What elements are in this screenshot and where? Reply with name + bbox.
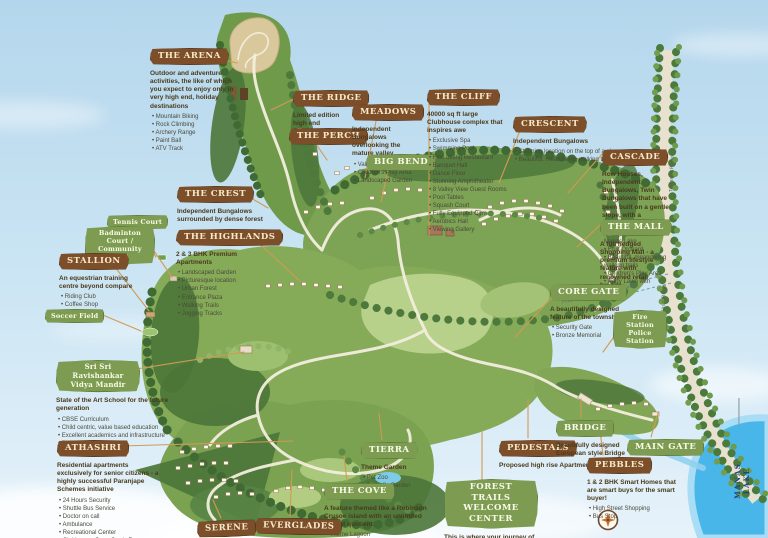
area-pedestals-desc: Proposed high rise Apartments <box>499 462 599 470</box>
area-pebbles-bullets: High Street ShoppingBus Stop <box>587 505 687 521</box>
area-athashri: ATHASHRI Residential apartments exclusiv… <box>57 437 165 538</box>
welcome-center-plaque: FOREST TRAILS WELCOME CENTER <box>444 479 538 529</box>
area-school-plaque: Sri Sri Ravishankar Vidya Mandir <box>56 360 140 392</box>
area-arena-plaque: THE ARENA <box>150 48 229 65</box>
soccer-field-label: Soccer Field <box>45 309 104 323</box>
bullet-item: CBSE Curriculum <box>58 416 178 424</box>
area-crest-plaque: THE CREST <box>177 186 254 203</box>
bullet-item: Viewing Gallery <box>429 226 511 234</box>
bullet-item: Landscaped Garden <box>178 269 268 277</box>
site-map: THE ARENA Outdoor and adventure activiti… <box>0 0 768 538</box>
fine-print <box>738 398 740 425</box>
bullet-item: High Street Shopping <box>589 505 687 513</box>
bullet-item: Doctor on call <box>59 513 165 521</box>
bullet-item: Banquet Hall <box>429 162 511 170</box>
area-highlands-bullets: Landscaped GardenPicturesque locationUrb… <box>176 269 268 318</box>
area-soccer-field: Soccer Field <box>45 305 104 323</box>
bullet-item: Bus Stop <box>589 513 687 521</box>
area-crescent-desc: Independent Bungalows <box>513 138 625 146</box>
area-school-desc: State of the Art School for the future g… <box>56 397 178 413</box>
area-pebbles-desc: 1 & 2 BHK Smart Homes that are smart buy… <box>587 479 687 503</box>
area-tierra-plaque: TIERRA <box>361 442 418 459</box>
area-coregate-plaque: CORE GATE <box>550 284 627 301</box>
area-serene-plaque: SERENE <box>197 519 257 538</box>
bullet-item: Walking Trails <box>178 302 268 310</box>
area-cliff: THE CLIFF 40000 sq ft large Clubhouse co… <box>427 86 511 235</box>
bullet-item: Riding Club <box>61 293 135 301</box>
area-highlands-desc: 2 & 3 BHK Premium Apartments <box>176 251 268 267</box>
area-mall: THE MALL A full fledged Shopping Mall - … <box>600 216 668 290</box>
area-welcome-center: FOREST TRAILS WELCOME CENTER This is whe… <box>444 479 556 538</box>
bullet-item: 8 Valley View Guest Rooms <box>429 186 511 194</box>
area-pebbles-plaque: PEBBLES <box>587 457 652 474</box>
area-maingate: MAIN GATE <box>627 436 704 456</box>
area-meadows: MEADOWS Independent Bungalows overlookin… <box>352 101 416 185</box>
area-cliff-plaque: THE CLIFF <box>427 89 500 106</box>
area-bigbend-plaque: BIG BEND <box>366 154 436 171</box>
bullet-item: ATV Track <box>152 145 242 153</box>
area-mall-plaque: THE MALL <box>600 219 672 236</box>
bullet-item: Fully Equipped Gym <box>429 210 511 218</box>
bullet-item: Aerobics Hall <box>429 218 511 226</box>
bullet-item: 24 Hours Security <box>59 497 165 505</box>
area-bridge-plaque: BRIDGE <box>556 420 614 437</box>
area-school: Sri Sri Ravishankar Vidya Mandir State o… <box>56 360 178 448</box>
bullet-item: Squash Court <box>429 202 511 210</box>
bullet-item: Child centric, value based education <box>58 424 178 432</box>
bullet-item: Recreational Center <box>59 529 165 537</box>
bullet-item: Picturesque location <box>178 277 268 285</box>
bullet-item: Urban Forest <box>178 285 268 293</box>
bullet-item: Fine dining Restaurant <box>429 154 511 162</box>
area-arena-bullets: Mountain BikingRock ClimbingArchery Rang… <box>150 113 242 153</box>
soccer-field-shape <box>142 328 158 336</box>
bullet-item: Landscaped Garden <box>354 177 416 185</box>
area-bridge: BRIDGE Beautifully designed European sty… <box>556 417 634 458</box>
welcome-center-desc: This is where your journey of exploring … <box>444 534 556 538</box>
bullet-item: Shuttle Bus Service <box>59 505 165 513</box>
area-crest-desc: Independent Bungalows surrounded by dens… <box>177 208 277 224</box>
bullet-item: Paint Ball <box>152 137 242 145</box>
bullet-item: Stunning Amphitheater <box>429 178 511 186</box>
bullet-item: Swimming Pool <box>429 145 511 153</box>
area-stallion-desc: An equestrian training centre beyond com… <box>59 275 135 291</box>
area-athashri-bullets: 24 Hours SecurityShuttle Bus ServiceDoct… <box>57 497 165 538</box>
stallion-stable <box>146 312 155 317</box>
bullet-item: Exclusive Spa <box>429 137 511 145</box>
area-cove-plaque: THE COVE <box>324 483 395 500</box>
area-fire-police-station: Fire Station Police Station <box>613 310 667 349</box>
area-highlands-plaque: THE HIGHLANDS <box>176 229 283 246</box>
area-everglades: EVERGLADES <box>255 514 343 536</box>
area-athashri-desc: Residential apartments exclusively for s… <box>57 462 165 495</box>
area-crescent-plaque: CRESCENT <box>513 116 587 133</box>
area-serene: SERENE <box>197 516 257 538</box>
bullet-item: Rock Climbing <box>152 121 242 129</box>
bullet-item: Dance Floor <box>429 170 511 178</box>
bullet-item: Mountain Biking <box>152 113 242 121</box>
bullet-item: Jogging Tracks <box>178 310 268 318</box>
area-athashri-plaque: ATHASHRI <box>57 440 129 457</box>
area-stallion-plaque: STALLION <box>59 253 129 270</box>
area-arena-desc: Outdoor and adventure activities, the li… <box>150 70 242 111</box>
area-cliff-bullets: Exclusive SpaSwimming PoolFine dining Re… <box>427 137 511 234</box>
area-arena: THE ARENA Outdoor and adventure activiti… <box>150 45 242 153</box>
area-cliff-desc: 40000 sq ft large Clubhouse complex that… <box>427 111 511 135</box>
bullet-item: Ambulance <box>59 521 165 529</box>
bullet-item: Entrance Plaza <box>178 294 268 302</box>
area-meadows-plaque: MEADOWS <box>352 104 424 121</box>
area-tierra-desc: Theme Garden <box>361 464 425 472</box>
bullet-item: Theme Lagoon <box>326 531 440 538</box>
area-crest: THE CREST Independent Bungalows surround… <box>177 183 277 224</box>
fire-police-station-label: Fire Station Police Station <box>613 310 667 349</box>
manas-lake-label: MANAS LAKE <box>733 451 751 511</box>
area-cascade-plaque: CASCADE <box>602 149 668 166</box>
area-bigbend: BIG BEND <box>366 151 436 171</box>
area-pebbles: PEBBLES 1 & 2 BHK Smart Homes that are s… <box>587 454 687 522</box>
bullet-item: Archery Range <box>152 129 242 137</box>
bullet-item: Pool Tables <box>429 194 511 202</box>
area-highlands: THE HIGHLANDS 2 & 3 BHK Premium Apartmen… <box>176 226 268 318</box>
area-everglades-plaque: EVERGLADES <box>255 517 343 536</box>
